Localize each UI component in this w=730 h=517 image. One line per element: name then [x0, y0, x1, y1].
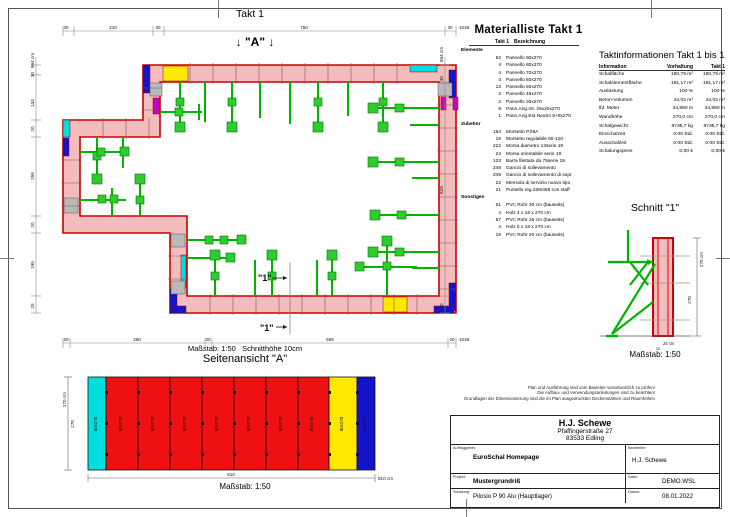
company-street: Pfaffingerstraße 27: [451, 428, 719, 435]
title-block: H.J. Schewe Pfaffingerstraße 27 83533 Ed…: [450, 415, 720, 508]
date-value: 08.01.2022: [662, 493, 719, 500]
svg-text:629: 629: [439, 186, 444, 194]
svg-text:270 cm: 270 cm: [699, 252, 704, 267]
section-zubehoer: Zubehör: [461, 121, 596, 129]
svg-text:360: 360: [133, 337, 141, 342]
svg-text:20: 20: [63, 337, 69, 342]
material-row: 61PVC Rohr 30 cm (bauseits): [461, 202, 596, 209]
schnitt-scale: Maßstab: 1:50: [600, 350, 710, 359]
svg-text:90x270: 90x270: [150, 416, 155, 431]
company-city: 83533 Edling: [451, 435, 719, 442]
fold-mark-top-right: [651, 0, 652, 18]
file-cell: Datei: DEMO.WSL: [626, 474, 719, 488]
svg-text:20: 20: [439, 303, 444, 309]
schnitt-wall: [653, 238, 673, 336]
section-sonstiges: Sonstiges: [461, 194, 596, 202]
client-cell: Auftraggeber: EuroSchal Homepage: [451, 445, 626, 473]
disclaimer-note: Plan und Ausführung sind vom Bauleiter v…: [345, 385, 655, 401]
material-row: 24Morsa orientabile serie 19: [461, 151, 596, 158]
plan-caption-scale: Maßstab: 1:50 Schnitthöhe 10cm: [130, 344, 360, 353]
svg-text:25 cm: 25 cm: [663, 341, 675, 346]
company-header: H.J. Schewe Pfaffingerstraße 27 83533 Ed…: [451, 416, 719, 442]
company-name: H.J. Schewe: [451, 418, 719, 428]
svg-text:30: 30: [63, 25, 69, 30]
svg-text:694 cm: 694 cm: [30, 53, 35, 68]
sideview-scale: Maßstab: 1:50: [130, 482, 360, 491]
material-row: 248Gancio di sollevamento di sopr: [461, 172, 596, 179]
svg-text:90x270: 90x270: [182, 416, 187, 431]
svg-text:694 cm: 694 cm: [439, 47, 444, 62]
section-elemente: Elemente: [461, 47, 596, 55]
svg-text:810: 810: [227, 472, 235, 477]
floor-plan-drawing: "1" "1" 30 210 30 750 30: [20, 10, 470, 370]
svg-text:20: 20: [30, 126, 35, 132]
svg-text:"1": "1": [258, 273, 272, 283]
material-row: 154Morsetto P.06A: [461, 129, 596, 136]
material-row: 4Holz 5 x 18 x 270 cm: [461, 224, 596, 231]
project-cell: Projekt: Mustergrundriß: [451, 474, 626, 488]
svg-text:25: 25: [30, 303, 35, 309]
svg-text:270: 270: [687, 296, 692, 304]
svg-text:195: 195: [30, 261, 35, 269]
sideview-drawing: 50x270 90x270 90x270 90x270 90x270 90x27…: [55, 360, 395, 495]
svg-text:210: 210: [109, 25, 117, 30]
takt-info-title: Taktinformationen Takt 1 bis 1: [599, 50, 727, 61]
material-row: 4Pannello 60x270: [461, 77, 596, 84]
info-row: Schalfläche180,79 m²180,79 m²: [599, 71, 725, 80]
svg-text:20: 20: [449, 337, 455, 342]
svg-text:30: 30: [155, 25, 161, 30]
material-row: 222Morsa diametro 13serie 19: [461, 143, 596, 150]
svg-text:90x270: 90x270: [278, 416, 283, 431]
svg-text:665: 665: [326, 337, 334, 342]
svg-text:90x270: 90x270: [214, 416, 219, 431]
info-row: Ausschalzeit0:00 Std.0:00 Std.: [599, 140, 725, 149]
material-row: 16PVC Rohr 20 cm (bauseits): [461, 232, 596, 239]
svg-text:50x270: 50x270: [362, 416, 367, 431]
svg-text:270 cm: 270 cm: [62, 392, 67, 407]
info-row: Einschalzeit0:00 Std.0:00 Std.: [599, 131, 725, 140]
takt-info-panel: Taktinformationen Takt 1 bis 1 Informati…: [599, 50, 727, 157]
svg-text:750: 750: [300, 25, 308, 30]
client-value: EuroSchal Homepage: [473, 454, 625, 461]
info-row: Schalungspreis0,00 €0,00 €: [599, 148, 725, 157]
svg-text:134: 134: [30, 99, 35, 107]
svg-text:30: 30: [447, 25, 453, 30]
info-row: Schalgewicht8735,7 kg8735,7 kg: [599, 123, 725, 132]
material-row: 21Puntello reg.208/368 con staff: [461, 187, 596, 194]
material-list-title: Materialliste Takt 1: [461, 24, 596, 36]
material-row: 1Pann.Ang.Est.Neutro 8+8x270: [461, 113, 596, 120]
info-row: lfd. Meter34,880 m34,880 m: [599, 105, 725, 114]
takt-info-table: Information Vorhaltung Takt 1 Schalfläch…: [599, 64, 725, 157]
svg-text:90x270: 90x270: [309, 416, 314, 431]
material-row: 4Holz 4 x 18 x 270 cm: [461, 210, 596, 217]
material-row: 4Pannello 70x270: [461, 70, 596, 77]
formwork-cell: Schalung: Pilosio P 90 Alu (Hauptlager): [451, 489, 626, 503]
material-row: 57PVC Rohr 25 cm (bauseits): [461, 217, 596, 224]
material-row: 8Pann.Ang.Int. 25x20x270: [461, 106, 596, 113]
formwork-value: Pilosio P 90 Alu (Hauptlager): [473, 493, 625, 500]
fold-mark-left: [0, 258, 14, 259]
editor-cell: Bearbeiter: H.J. Schewe: [626, 445, 719, 473]
svg-text:1048 cm: 1048 cm: [459, 337, 470, 342]
formwork-props: [80, 82, 439, 296]
material-row: 3Pannello 45x270: [461, 91, 596, 98]
schnitt-drawing: 270 cm 270 25 cm 20: [595, 195, 730, 365]
material-row: 248Gancio di sollevamento: [461, 165, 596, 172]
svg-text:"1": "1": [260, 323, 274, 333]
material-row: 16Morsetto regolabile 60-120: [461, 136, 596, 143]
info-row: Wandhöhe270,0 cm270,0 cm: [599, 114, 725, 123]
material-row: 13Pannello 50x270: [461, 84, 596, 91]
file-value: DEMO.WSL: [662, 478, 719, 485]
plan-sheet: Takt 1 ↓ "A" ↓: [0, 0, 730, 517]
svg-text:810 cm: 810 cm: [378, 476, 393, 481]
material-list: Materialliste Takt 1 Takt 1 Bezeichnung …: [461, 24, 596, 239]
svg-text:90x270: 90x270: [118, 416, 123, 431]
info-row: Schalelementfläche181,17 m²181,17 m²: [599, 80, 725, 89]
material-row: 4Pannello 80x270: [461, 62, 596, 69]
svg-text:270: 270: [70, 420, 75, 428]
svg-text:80x270: 80x270: [339, 416, 344, 431]
schnitt-guides: [600, 256, 692, 336]
svg-text:30: 30: [30, 72, 35, 78]
info-row: Auslastung100 %100 %: [599, 88, 725, 97]
project-value: Mustergrundriß: [473, 478, 625, 485]
svg-text:50x270: 50x270: [93, 416, 98, 431]
date-cell: Datum: 08.01.2022: [626, 489, 719, 503]
svg-text:30: 30: [439, 76, 444, 82]
material-list-header: Takt 1 Bezeichnung: [469, 39, 579, 46]
svg-text:20: 20: [30, 222, 35, 228]
info-row: Beton-Volumen24,02 m³24,02 m³: [599, 97, 725, 106]
editor-value: H.J. Schewe: [632, 457, 719, 464]
svg-text:20: 20: [205, 337, 211, 342]
material-row: 22Mensola di servizio nuovo tipo: [461, 180, 596, 187]
svg-text:90x270: 90x270: [246, 416, 251, 431]
material-row: 52Pannello 90x270: [461, 55, 596, 62]
svg-text:255: 255: [30, 172, 35, 180]
material-row: 123Barra filettata da 75serie 19: [461, 158, 596, 165]
material-row: 2Pannello 30x270: [461, 99, 596, 106]
sideview-panels: [88, 377, 375, 470]
